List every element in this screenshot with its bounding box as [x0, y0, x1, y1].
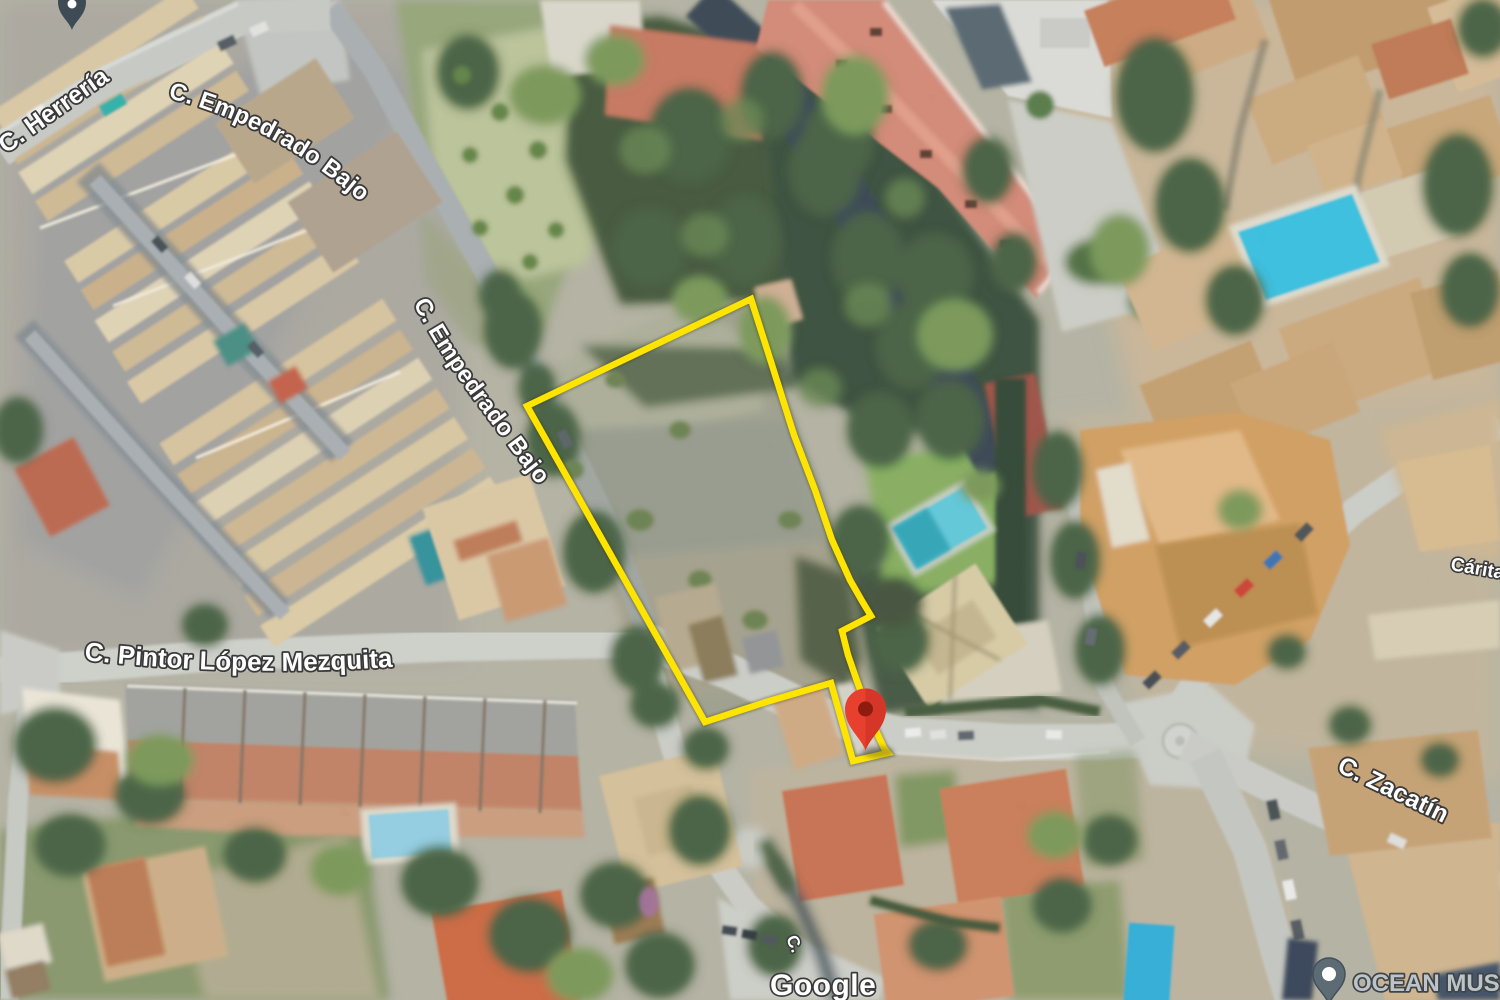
- svg-text:Google: Google: [770, 969, 876, 1000]
- svg-text:OCEAN MUSIC: OCEAN MUSIC: [1353, 970, 1500, 997]
